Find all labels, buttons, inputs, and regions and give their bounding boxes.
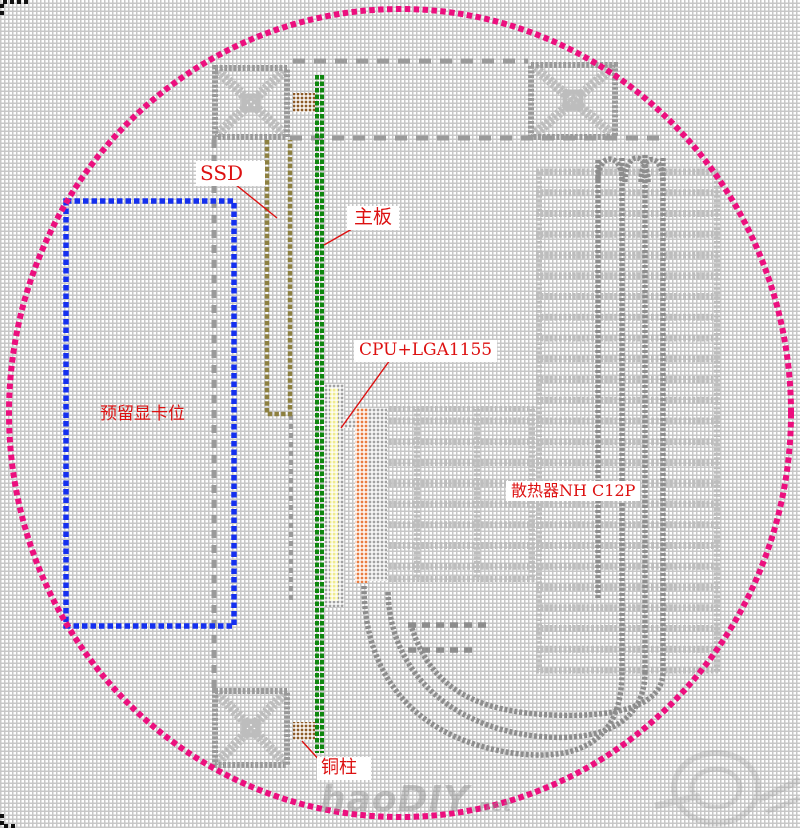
- case-panel-lines: [214, 61, 659, 688]
- ssd-label: SSD: [196, 161, 265, 186]
- site-watermark-suffix: .net: [472, 796, 512, 815]
- site-watermark: haoDIY.net: [320, 779, 512, 820]
- motherboard-line: [317, 75, 322, 753]
- fan-mount-top-left: [215, 68, 287, 137]
- corner-watermark: [655, 753, 800, 823]
- cooler-orange-base: [355, 408, 368, 583]
- copper-pillar-label: 铜柱: [317, 757, 371, 780]
- copper-pillar-bottom: [293, 722, 315, 740]
- cpu-yellow-strip: [330, 388, 338, 601]
- cpu-label: CPU+LGA1155: [354, 340, 497, 362]
- cooler-fan-frame: [389, 172, 717, 672]
- site-watermark-text: haoDIY: [320, 779, 470, 820]
- copper-pillar-top: [293, 93, 315, 112]
- gpu-slot-label: 预留显卡位: [100, 405, 185, 425]
- heat-pipes: [364, 155, 663, 755]
- cooler-fan-body: [368, 408, 387, 581]
- ssd-outline: [267, 140, 290, 414]
- cad-drawing-canvas: SSD 主板 预留显卡位 CPU+LGA1155 散热器NH C12P 铜柱 h…: [0, 0, 800, 828]
- fan-mount-bottom: [215, 691, 287, 765]
- fan-mount-top-right: [531, 65, 615, 137]
- motherboard-label: 主板: [347, 206, 399, 230]
- cooler-label: 散热器NH C12P: [506, 481, 640, 501]
- cooler-fin-stack: [389, 172, 719, 670]
